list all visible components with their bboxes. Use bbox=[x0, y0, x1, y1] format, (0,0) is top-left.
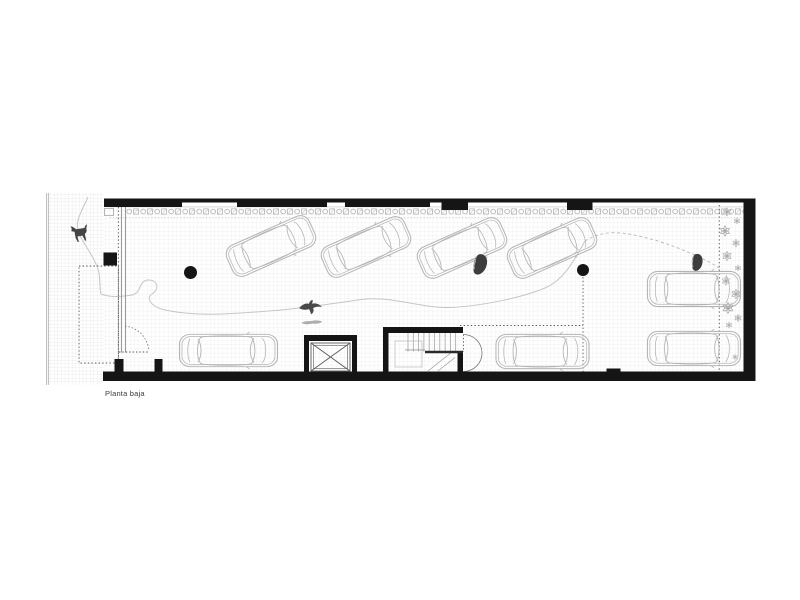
facade-pier bbox=[567, 199, 593, 211]
floor-plan-page: Planta baja bbox=[0, 0, 800, 600]
facade-pier bbox=[442, 199, 469, 211]
exterior-wall-bottom bbox=[103, 372, 756, 382]
door-jamb bbox=[155, 359, 163, 372]
floor-plan-canvas: Planta baja bbox=[0, 0, 800, 600]
entry-pier bbox=[104, 253, 118, 266]
facade-planting-band bbox=[105, 207, 744, 218]
exterior-wall-right bbox=[744, 199, 756, 382]
door-jamb bbox=[115, 359, 124, 372]
wall-stub bbox=[607, 369, 621, 373]
ground-floor-label: Planta baja bbox=[105, 389, 145, 398]
column-dot bbox=[184, 266, 197, 279]
column-dot bbox=[577, 264, 589, 276]
sidewalk-strip bbox=[47, 193, 104, 385]
